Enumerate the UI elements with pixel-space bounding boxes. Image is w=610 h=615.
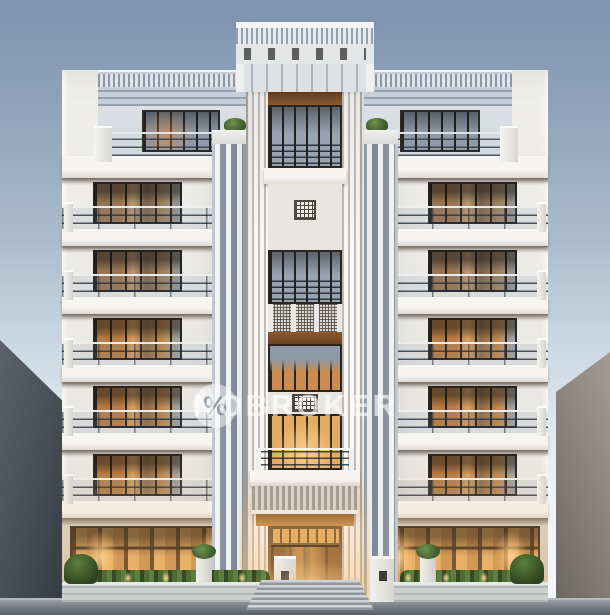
corner-post	[537, 202, 546, 232]
door-transom	[271, 529, 339, 545]
garden-uplight	[124, 572, 132, 584]
penthouse-fascia	[98, 70, 250, 106]
canopy-underside	[256, 514, 354, 526]
tower-wall-panel	[268, 392, 342, 414]
property-photo: % NOBROKER	[0, 0, 610, 615]
central-tower	[240, 22, 370, 602]
crown-rib-band	[236, 28, 374, 44]
garden-uplight	[162, 572, 170, 584]
corner-post	[537, 406, 546, 436]
fascia-rib-band	[360, 74, 512, 87]
boundary-wall	[392, 582, 548, 602]
boundary-wall	[62, 582, 278, 602]
planter-pot	[196, 556, 212, 582]
corner-post	[64, 338, 73, 368]
potted-plant	[416, 544, 440, 559]
entrance-canopy	[252, 486, 358, 514]
entrance-balcony-slab	[250, 470, 360, 486]
square-ornament	[292, 394, 318, 412]
corner-shrub	[64, 554, 98, 584]
garden-uplight	[442, 572, 450, 584]
entrance-steps	[246, 580, 374, 610]
garden-uplight	[404, 572, 412, 584]
corner-post	[64, 474, 73, 504]
terrace-corner-post	[94, 126, 112, 162]
planter-pot	[420, 556, 436, 582]
corner-post	[537, 338, 546, 368]
tower-slab	[264, 168, 346, 184]
corner-post	[64, 270, 73, 300]
tower-window	[268, 344, 342, 392]
wood-header-band	[268, 92, 342, 105]
ornament-squares	[244, 48, 366, 60]
terrace-corner-post	[500, 126, 518, 162]
tower-window	[268, 105, 342, 168]
corner-post	[537, 270, 546, 300]
entrance-balcony-railing	[256, 448, 354, 472]
wood-band	[268, 332, 342, 344]
corner-shrub	[510, 554, 544, 584]
gate-pillar	[372, 556, 394, 602]
garden-uplight	[480, 572, 488, 584]
potted-plant	[192, 544, 216, 559]
crown-pilaster-band	[236, 64, 374, 92]
pillar-plaque	[379, 571, 387, 581]
tower-wall-panel	[268, 184, 342, 250]
tower-window	[268, 250, 342, 304]
crown-ornament-band	[236, 44, 374, 64]
garden-uplight	[238, 572, 246, 584]
corner-post	[64, 406, 73, 436]
square-ornament	[294, 200, 316, 220]
fascia-rib-band	[98, 74, 250, 87]
tower-crown	[236, 22, 374, 92]
penthouse-fascia	[360, 70, 512, 106]
corner-post	[537, 474, 546, 504]
right-neighbor-building	[556, 352, 610, 602]
corner-post	[64, 202, 73, 232]
lattice-ornament-band	[268, 304, 342, 332]
